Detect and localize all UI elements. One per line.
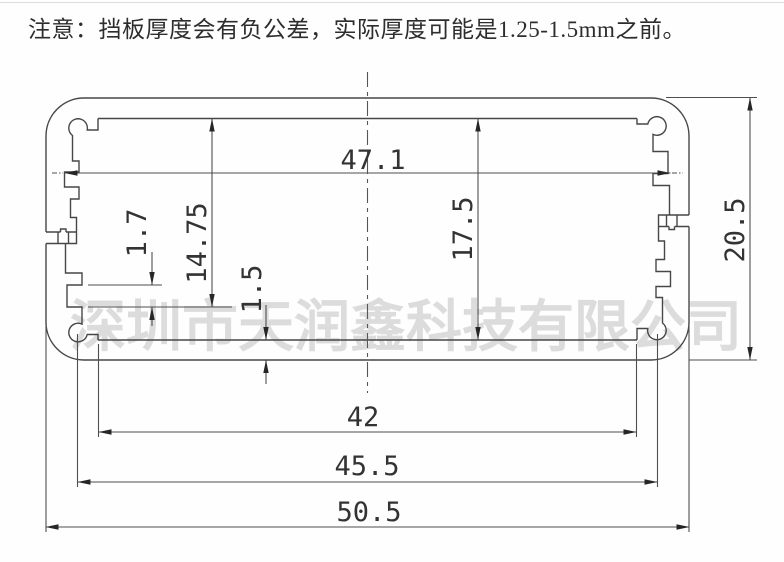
dimension-arrowhead bbox=[677, 524, 690, 529]
dimension-arrowhead bbox=[78, 479, 91, 484]
drawing-page: 注意：挡板厚度会有负公差，实际厚度可能是1.25-1.5mm之前。 深圳市天润鑫… bbox=[0, 0, 784, 562]
dim-label-hole-spacing: 45.5 bbox=[334, 451, 399, 482]
dimension-arrowhead bbox=[263, 327, 268, 340]
dimension-labels: 47.1 14.75 1.7 1.5 17.5 20.5 42 45.5 50.… bbox=[122, 145, 751, 528]
dim-label-pcb-slot: 1.7 bbox=[122, 209, 153, 258]
dim-label-inner-height: 17.5 bbox=[448, 196, 479, 261]
dim-label-overall-height: 20.5 bbox=[720, 197, 751, 262]
dimension-arrowhead bbox=[475, 327, 480, 340]
dimension-arrowhead bbox=[747, 347, 752, 360]
dim-label-overall-width: 50.5 bbox=[336, 497, 401, 528]
dimension-arrowhead bbox=[149, 307, 154, 320]
left-wall-upper bbox=[65, 119, 99, 233]
dimension-arrowhead bbox=[209, 119, 214, 132]
dim-label-inner-width: 47.1 bbox=[340, 145, 405, 176]
dimension-arrowhead bbox=[65, 170, 78, 175]
dimension-arrowhead bbox=[645, 479, 658, 484]
dim-label-inner-step: 42 bbox=[347, 402, 380, 433]
dimension-arrowhead bbox=[624, 429, 637, 434]
dimension-arrowhead bbox=[263, 360, 268, 373]
dimension-arrowhead bbox=[747, 98, 752, 111]
dimension-arrowhead bbox=[209, 294, 214, 307]
dimension-arrowhead bbox=[475, 119, 480, 132]
dimension-arrowhead bbox=[99, 429, 112, 434]
dimension-arrowhead bbox=[149, 272, 154, 285]
dimension-arrowhead bbox=[46, 524, 59, 529]
left-side-slot bbox=[46, 229, 77, 244]
left-wall-lower bbox=[66, 244, 99, 342]
dim-label-left-cavity: 14.75 bbox=[182, 202, 213, 283]
dim-label-panel: 1.5 bbox=[237, 265, 268, 314]
profile-cross-section-drawing: 47.1 14.75 1.7 1.5 17.5 20.5 42 45.5 50.… bbox=[0, 0, 784, 562]
